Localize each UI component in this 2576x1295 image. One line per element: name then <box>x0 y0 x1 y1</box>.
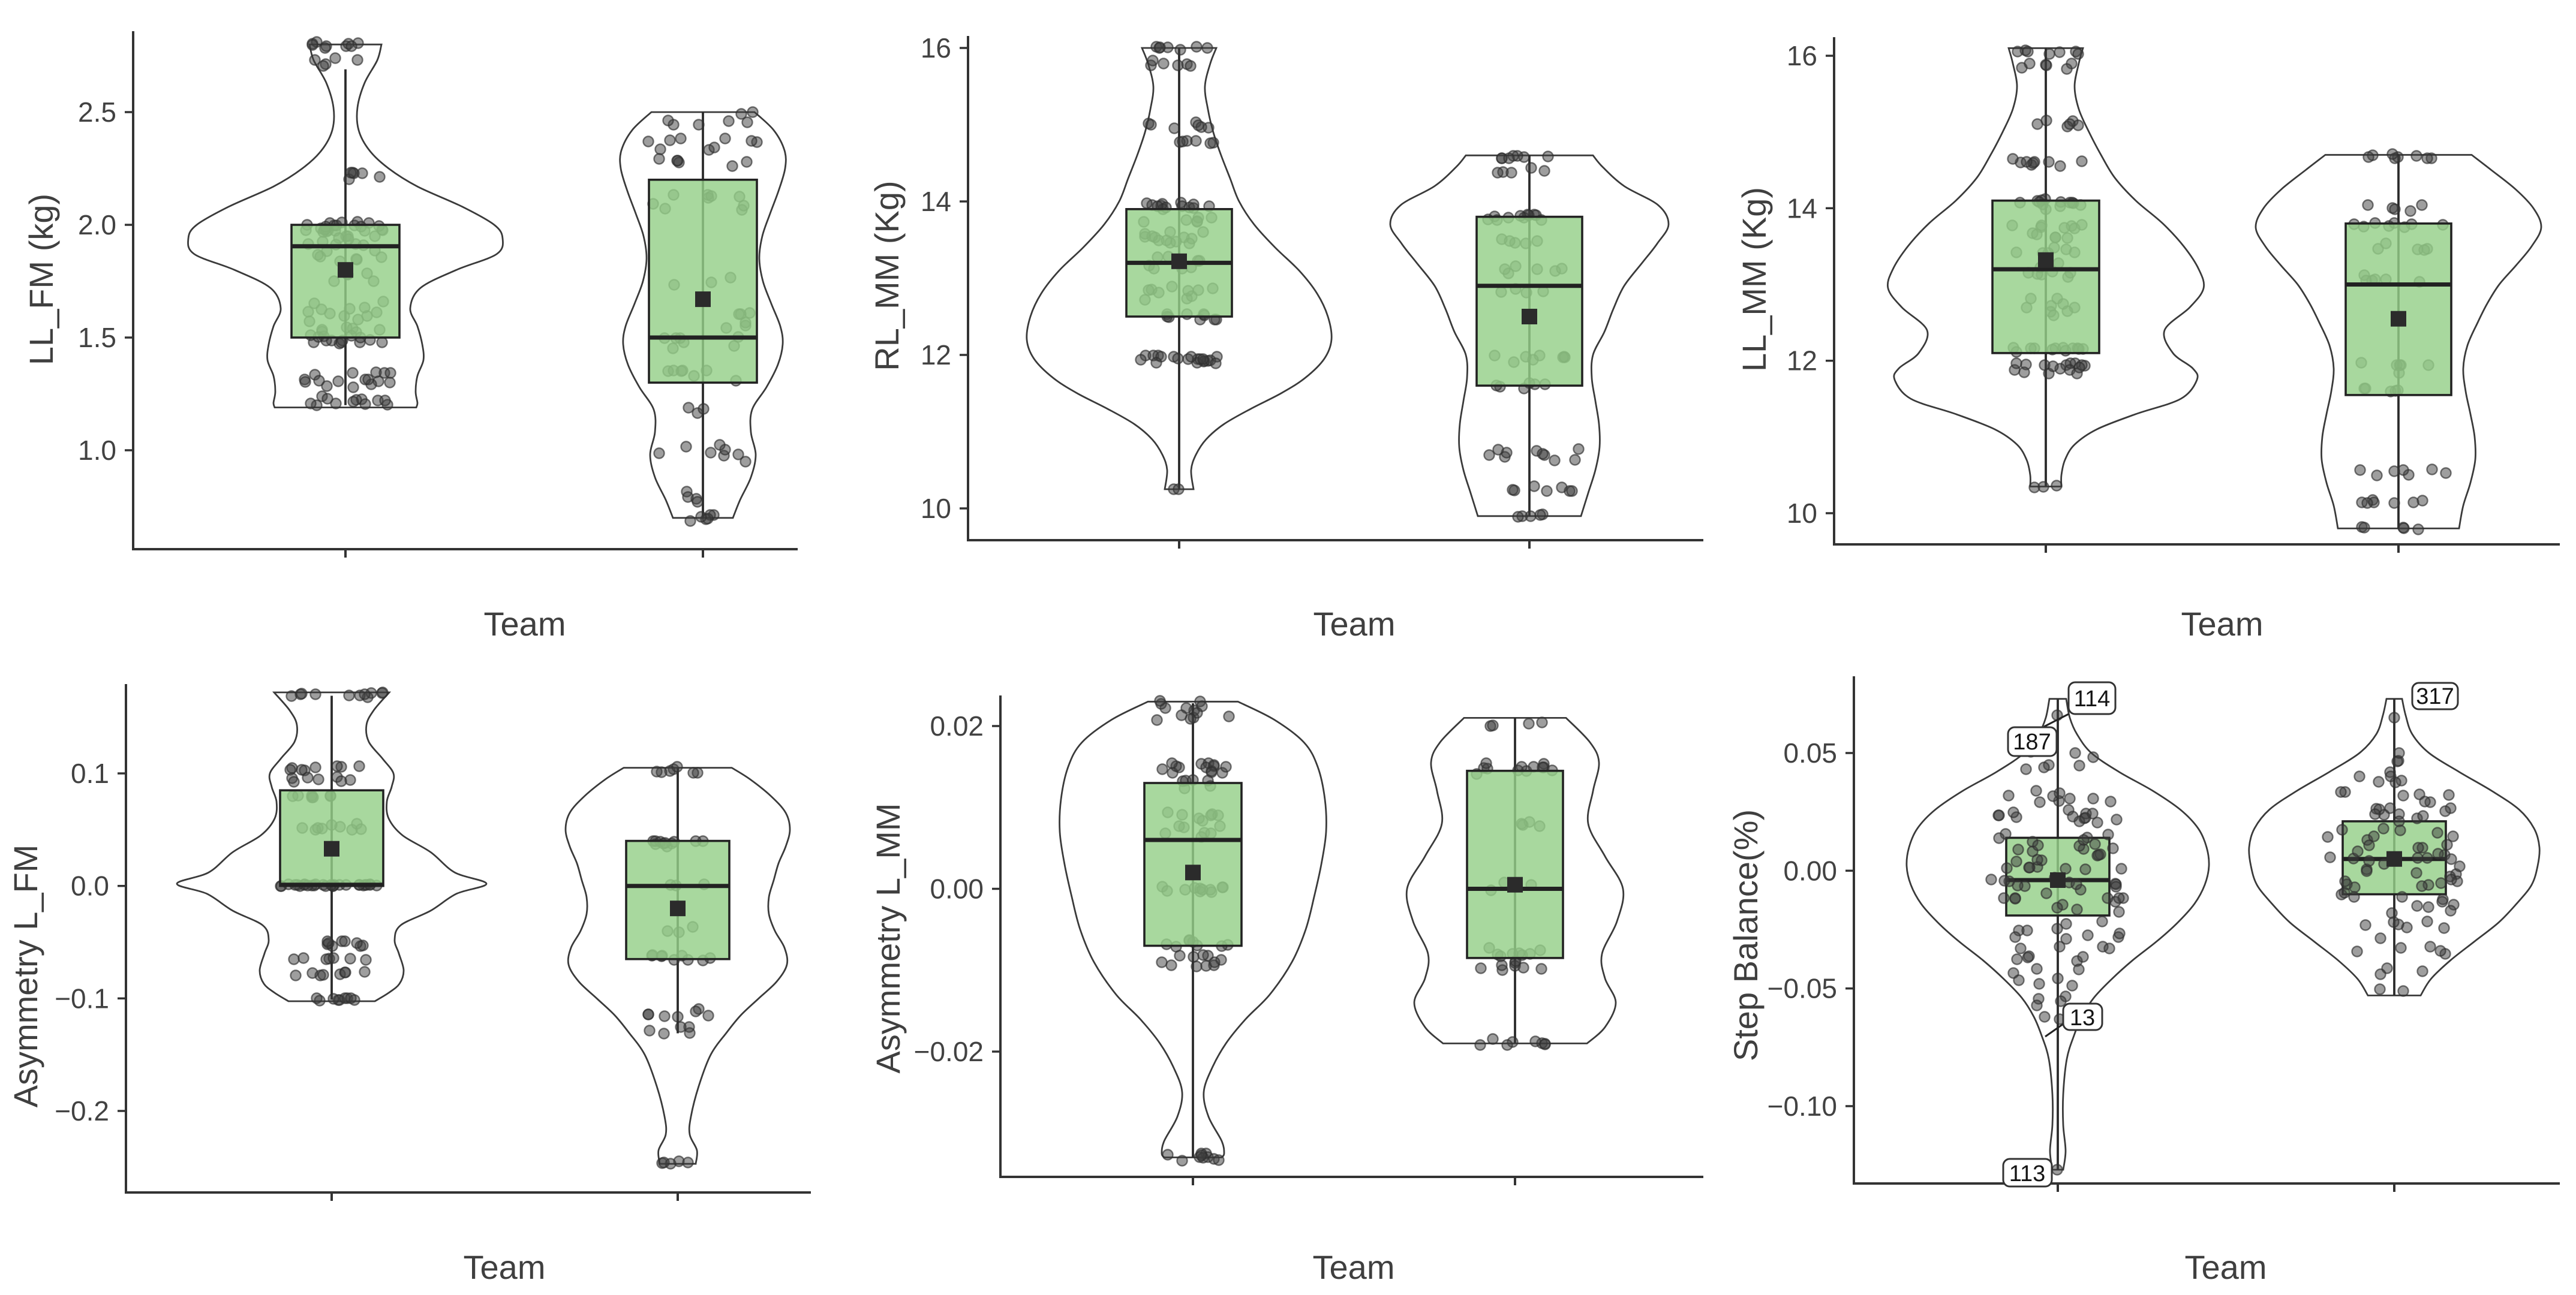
svg-text:317: 317 <box>2416 684 2454 709</box>
svg-text:Team: Team <box>1313 1248 1395 1286</box>
svg-text:−0.10: −0.10 <box>1768 1091 1837 1122</box>
svg-text:113: 113 <box>2009 1161 2046 1186</box>
svg-text:16: 16 <box>921 32 951 64</box>
svg-text:−0.1: −0.1 <box>55 983 109 1014</box>
svg-text:1.5: 1.5 <box>78 322 116 353</box>
svg-text:1.0: 1.0 <box>78 435 116 466</box>
svg-text:0.00: 0.00 <box>930 874 984 905</box>
svg-text:16: 16 <box>1787 40 1817 71</box>
svg-text:Team: Team <box>464 1248 546 1286</box>
svg-text:−0.05: −0.05 <box>1768 973 1837 1004</box>
svg-text:Step Balance(%): Step Balance(%) <box>1727 809 1765 1061</box>
svg-text:2.5: 2.5 <box>78 97 116 128</box>
svg-text:Asymmetry L_FM: Asymmetry L_FM <box>7 845 44 1108</box>
svg-text:Team: Team <box>1313 605 1396 643</box>
svg-text:114: 114 <box>2074 686 2111 712</box>
svg-text:13: 13 <box>2070 1005 2095 1031</box>
svg-text:14: 14 <box>1787 192 1817 224</box>
svg-text:LL_MM (Kg): LL_MM (Kg) <box>1735 187 1773 372</box>
svg-text:0.00: 0.00 <box>1783 855 1837 886</box>
svg-text:Team: Team <box>2181 605 2264 643</box>
svg-text:0.05: 0.05 <box>1783 737 1837 769</box>
svg-text:2.0: 2.0 <box>78 209 116 240</box>
svg-text:0.0: 0.0 <box>71 871 109 902</box>
svg-text:−0.2: −0.2 <box>55 1095 109 1127</box>
svg-text:−0.02: −0.02 <box>914 1036 984 1067</box>
svg-text:12: 12 <box>921 339 951 371</box>
svg-text:RL_MM (Kg): RL_MM (Kg) <box>868 180 906 371</box>
svg-text:10: 10 <box>921 493 951 524</box>
svg-text:Team: Team <box>484 605 566 643</box>
svg-text:14: 14 <box>921 186 951 217</box>
svg-text:0.1: 0.1 <box>71 758 109 789</box>
svg-text:Team: Team <box>2185 1248 2267 1286</box>
svg-text:0.02: 0.02 <box>930 710 984 742</box>
svg-text:187: 187 <box>2013 730 2051 755</box>
svg-text:LL_FM (kg): LL_FM (kg) <box>22 194 60 365</box>
svg-text:Asymmetry L_MM: Asymmetry L_MM <box>869 803 907 1073</box>
svg-text:10: 10 <box>1787 498 1817 529</box>
svg-text:12: 12 <box>1787 345 1817 377</box>
